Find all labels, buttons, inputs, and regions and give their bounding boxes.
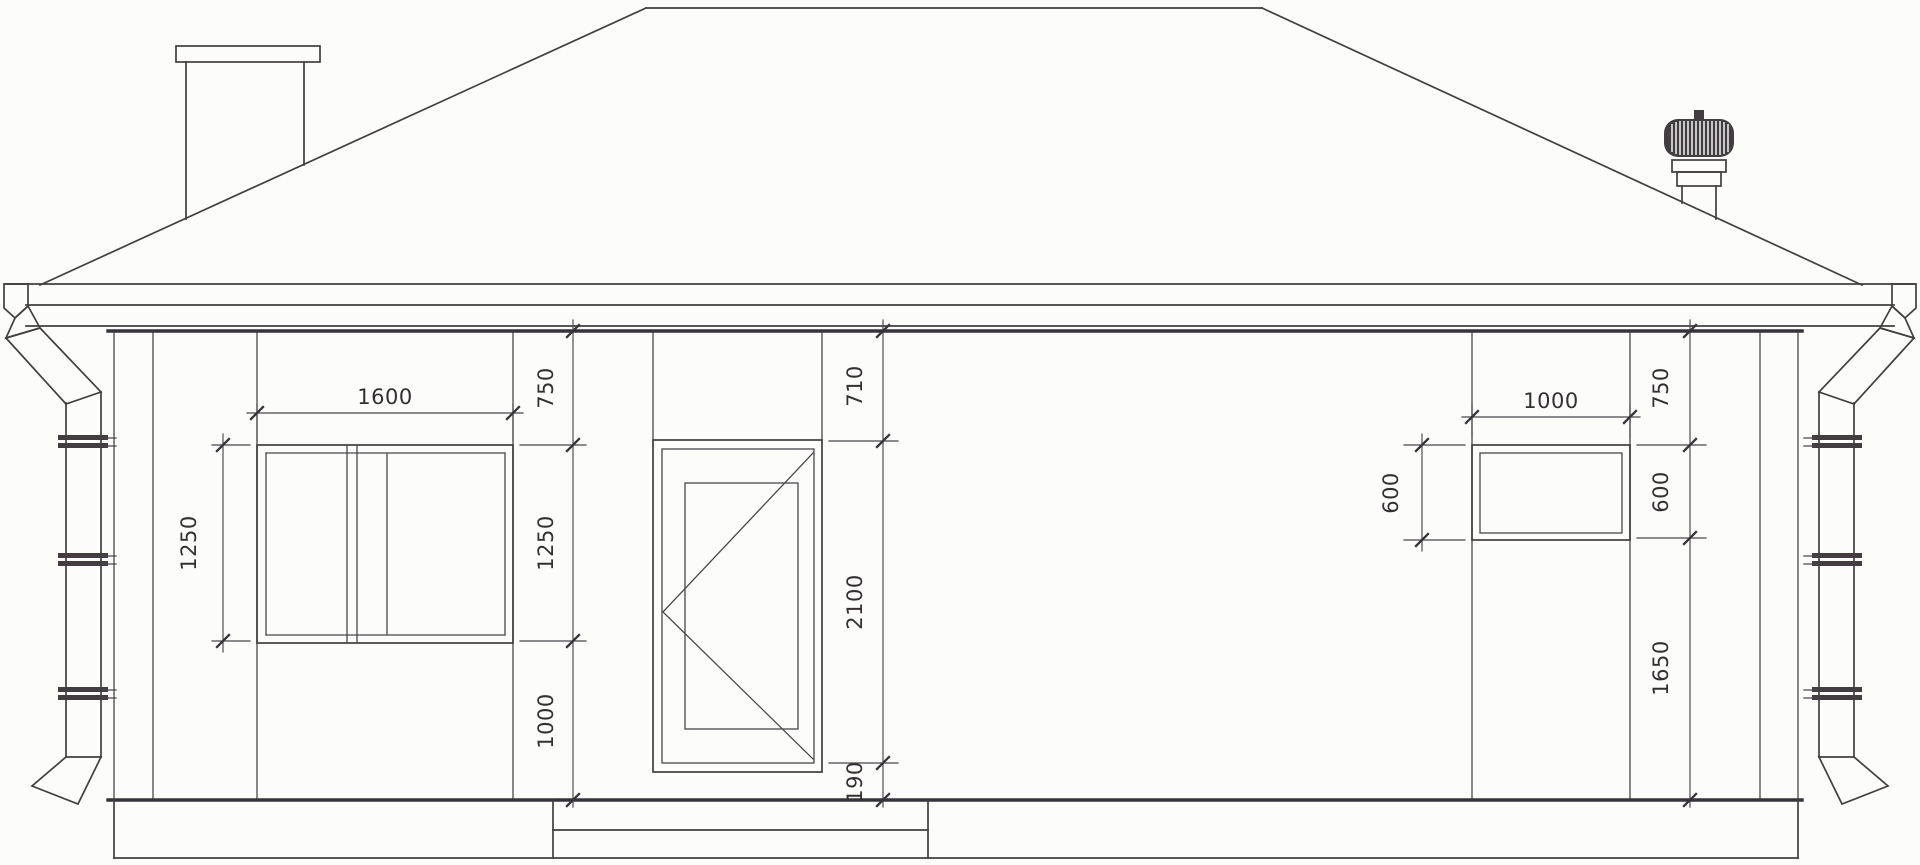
dim-right-window-height: 600 (1379, 434, 1465, 551)
dim-label-lw-chain-bottom: 1000 (534, 693, 558, 748)
dim-label-right-window-width: 1000 (1523, 389, 1578, 413)
door-step (553, 800, 928, 858)
gutter-endcap-left (4, 284, 28, 318)
dim-label-right-window-height: 600 (1379, 472, 1403, 514)
vent-collar-lower (1677, 172, 1721, 186)
downspout-right-elbow (1819, 328, 1914, 404)
dim-left-window-width: 1600 (247, 385, 523, 441)
dim-right-window-width: 1000 (1462, 389, 1640, 438)
dim-chain-right-window: 750 600 1650 (1637, 320, 1706, 807)
door-frame-outer (653, 440, 822, 772)
downspout-right (1804, 284, 1916, 804)
left-window (257, 445, 513, 643)
chimney-cap (176, 46, 320, 62)
downspout-left-shoe (32, 757, 101, 804)
dim-label-door-chain-top: 710 (843, 365, 867, 407)
right-window-frame (1472, 445, 1630, 540)
turbine-vent-icon (1664, 110, 1734, 219)
dim-chain-door: 710 2100 190 (829, 320, 898, 807)
downspout-right-shoe (1819, 757, 1888, 804)
eaves-fascia (6, 284, 1914, 331)
dim-left-window-height: 1250 (177, 434, 250, 652)
downspout-left-elbow (6, 328, 101, 404)
foundation (114, 800, 1798, 858)
entry-door (653, 440, 822, 772)
dim-label-lw-chain-top: 750 (534, 367, 558, 409)
hip-line-right (1262, 8, 1862, 285)
left-window-frame (257, 445, 513, 643)
dim-label-lw-chain-mid: 1250 (534, 515, 558, 570)
dim-label-door-chain-mid: 2100 (843, 574, 867, 629)
right-window (1472, 445, 1630, 540)
dim-label-rw-chain-mid: 600 (1649, 471, 1673, 513)
door-glass-panel (685, 483, 798, 729)
dim-label-left-window-width: 1600 (357, 385, 412, 409)
hip-line-left (40, 8, 646, 285)
chimney (176, 46, 320, 219)
downspout-left (4, 284, 116, 804)
elevation-canvas: 1600 1250 750 1250 1000 710 2100 190 (0, 0, 1920, 865)
hip-roof (40, 8, 1862, 285)
dim-chain-left-window: 750 1250 1000 (520, 320, 586, 807)
gutter-endcap-right (1892, 284, 1916, 318)
vent-turbine-ribs (1672, 121, 1728, 155)
dim-label-rw-chain-bottom: 1650 (1649, 640, 1673, 695)
vent-collar-upper (1672, 160, 1726, 172)
dim-label-door-chain-bottom: 190 (843, 761, 867, 803)
dim-label-left-window-height: 1250 (177, 515, 201, 570)
house-elevation-drawing: 1600 1250 750 1250 1000 710 2100 190 (0, 0, 1920, 865)
dim-label-rw-chain-top: 750 (1649, 367, 1673, 409)
right-window-inner (1480, 453, 1622, 533)
